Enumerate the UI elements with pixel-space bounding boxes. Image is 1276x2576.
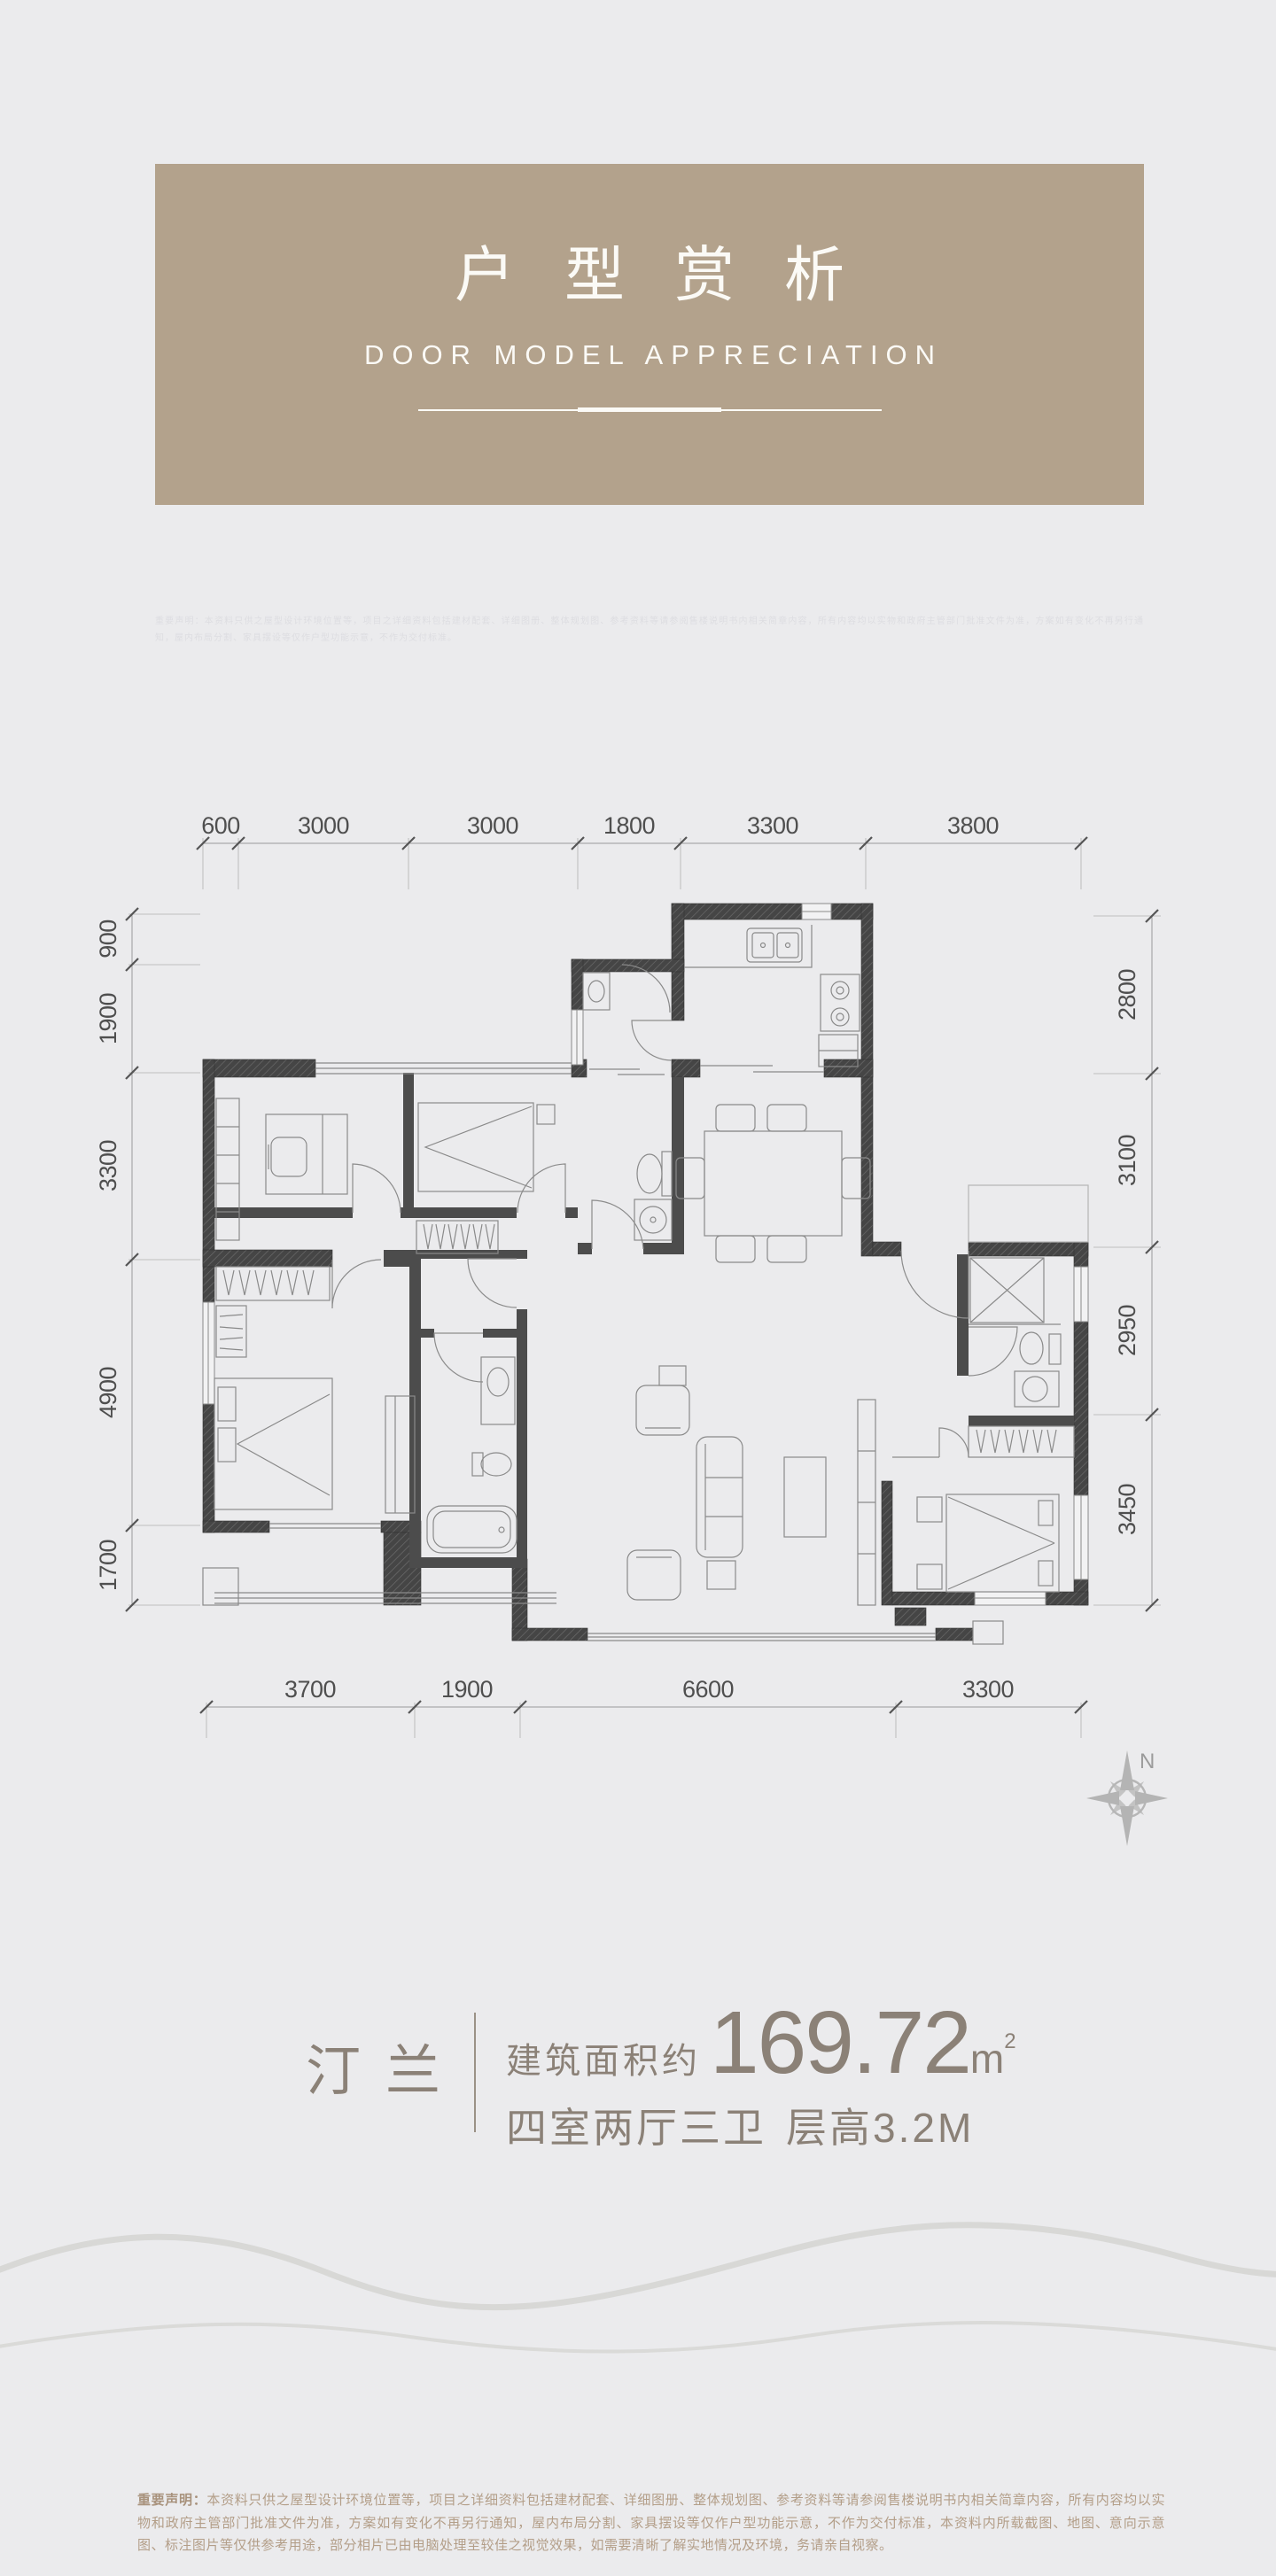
dim-label: 3000 [467, 812, 518, 839]
wave-line-1 [0, 2225, 1276, 2308]
room-bath-upper [583, 965, 672, 1240]
dimension-left-labels: 900 1900 3300 4900 1700 [95, 919, 121, 1591]
dimension-top [197, 837, 1087, 889]
unit-info: 汀兰 建筑面积约 169.72 m2 四室两厅三卫层高3.2M [306, 1998, 1016, 2154]
dim-label: 3300 [962, 1676, 1014, 1703]
area-label: 建筑面积约 [506, 2032, 701, 2083]
dim-label: 1900 [441, 1676, 493, 1703]
dimension-bottom-labels: 3700 1900 6600 3300 [284, 1676, 1014, 1703]
unit-layout-row: 四室两厅三卫层高3.2M [506, 2096, 1016, 2154]
legal-disclaimer: 重要声明：本资料只供之屋型设计环境位置等，项目之详细资料包括建材配套、详细图册、… [137, 2489, 1165, 2557]
room-living [627, 1366, 875, 1605]
room-study [216, 1098, 347, 1240]
compass-icon: N [1086, 1750, 1168, 1846]
compass-north-label: N [1140, 1750, 1155, 1773]
dim-label: 2950 [1114, 1305, 1140, 1356]
legal-label: 重要声明： [137, 2493, 206, 2508]
header-divider [418, 407, 882, 412]
room-dining [676, 1105, 870, 1262]
dim-label: 1700 [95, 1540, 121, 1591]
dim-label: 900 [95, 919, 121, 958]
room-bath-left [427, 1357, 517, 1553]
interior-walls [214, 1073, 1074, 1568]
room-bedroom2 [416, 1103, 555, 1253]
area-unit: m2 [970, 2029, 1016, 2083]
dimension-left [126, 908, 200, 1611]
room-master-left [214, 1267, 415, 1513]
dimension-bottom [200, 1701, 1087, 1738]
page-title: 户型赏析 [155, 245, 1144, 306]
dim-label: 3000 [298, 812, 349, 839]
floor-plan: 600 3000 3000 1800 3300 3800 900 1900 33… [0, 797, 1276, 1860]
poster-page: 户型赏析 DOOR MODEL APPRECIATION 重要声明：本资料只供之… [0, 0, 1276, 2576]
area-value: 169.72 [710, 1998, 970, 2087]
dim-label: 3450 [1114, 1484, 1140, 1535]
dim-label: 3800 [947, 812, 999, 839]
dim-label: 1800 [603, 812, 655, 839]
windows [203, 904, 1088, 1644]
page-subtitle: DOOR MODEL APPRECIATION [155, 341, 1144, 369]
structural-walls [203, 904, 1088, 1641]
room-kitchen [684, 925, 860, 1067]
header-disclaimer: 重要声明：本资料只供之屋型设计环境位置等，项目之详细资料包括建材配套、详细图册、… [155, 613, 1144, 647]
wave-decoration [0, 2161, 1276, 2427]
legal-text: 本资料只供之屋型设计环境位置等，项目之详细资料包括建材配套、详细图册、整体规划图… [137, 2493, 1165, 2553]
unit-divider [474, 2013, 476, 2132]
dim-label: 6600 [682, 1676, 734, 1703]
dim-label: 3300 [95, 1140, 121, 1191]
unit-area-row: 建筑面积约 169.72 m2 [506, 1998, 1016, 2087]
dimension-right-labels: 2800 3100 2950 3450 [1114, 969, 1140, 1535]
dim-label: 600 [201, 812, 240, 839]
layout-text: 四室两厅三卫 [506, 2105, 766, 2151]
unit-name: 汀兰 [306, 2045, 465, 2154]
wave-line-2 [0, 2323, 1276, 2352]
header-banner: 户型赏析 DOOR MODEL APPRECIATION [155, 164, 1144, 505]
dim-label: 1900 [95, 993, 121, 1044]
dim-label: 3700 [284, 1676, 336, 1703]
dimension-top-labels: 600 3000 3000 1800 3300 3800 [201, 812, 999, 839]
dim-label: 3100 [1114, 1135, 1140, 1186]
dim-label: 2800 [1114, 969, 1140, 1020]
height-text: 层高3.2M [786, 2105, 974, 2151]
dim-label: 4900 [95, 1367, 121, 1418]
dim-label: 3300 [747, 812, 798, 839]
